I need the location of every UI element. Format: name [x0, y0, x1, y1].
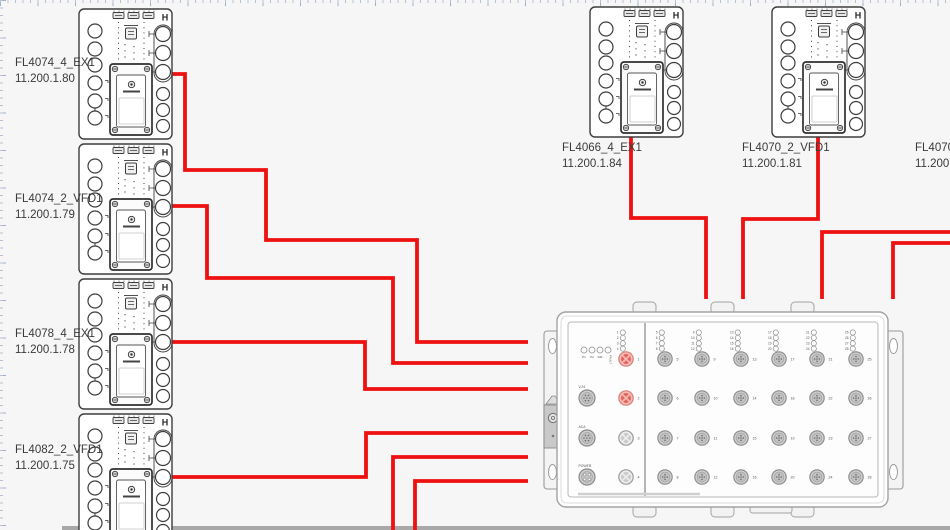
port-led: [620, 346, 625, 351]
device-label-FL4074_4_EX1[interactable]: FL4074_4_EX1 11.200.1.80: [15, 56, 95, 87]
port-led-number: 11: [691, 342, 695, 346]
port-led: [735, 330, 740, 335]
port-led-number: 5: [656, 331, 658, 335]
port-led: [850, 346, 855, 351]
port-led: [735, 341, 740, 346]
port-led-number: 15: [730, 342, 734, 346]
port-led: [811, 330, 816, 335]
port-led: [659, 346, 664, 351]
port-number: 9: [714, 357, 716, 361]
port-number: 23: [829, 436, 833, 440]
device-ip: 11.200.1.80: [15, 72, 95, 88]
port-number: 18: [791, 396, 795, 400]
port-number: 12: [714, 475, 718, 479]
device-shape-FL4070_2_VFD1[interactable]: [772, 7, 865, 137]
port-number: 25: [868, 357, 872, 361]
port-number: 4: [638, 475, 640, 479]
aux-port-label: POWER: [579, 464, 592, 468]
port-number: 8: [677, 475, 679, 479]
status-led-P1: [581, 347, 587, 353]
port-led: [773, 341, 778, 346]
device-ip: 11.200.1.75: [15, 459, 103, 475]
port-number: 10: [714, 396, 718, 400]
port-led: [811, 341, 816, 346]
port-led: [659, 341, 664, 346]
port-led-number: 22: [806, 336, 810, 340]
port-led-number: 9: [693, 331, 695, 335]
port-led: [811, 346, 816, 351]
device-label-FL4082_2_VFD1[interactable]: FL4082_2_VFD1 11.200.1.75: [15, 443, 103, 474]
port-led-number: 28: [845, 347, 849, 351]
port-led-number: 2: [617, 336, 619, 340]
status-led-label: FAULT: [609, 355, 613, 364]
port-led-number: 19: [768, 342, 772, 346]
cable-FL4082_2_VFD1[interactable]: [171, 433, 528, 477]
port-led: [811, 335, 816, 340]
port-number: 16: [753, 475, 757, 479]
cable-offscreen-bottom-b[interactable]: [415, 481, 528, 530]
port-led-number: 27: [845, 342, 849, 346]
port-number: 2: [638, 396, 640, 400]
port-number: 14: [753, 396, 757, 400]
port-led: [696, 330, 701, 335]
status-led-label: P1: [582, 355, 586, 359]
port-led-number: 4: [617, 347, 619, 351]
device-ip: 11.200.1.: [915, 157, 950, 173]
port-number: 27: [868, 436, 872, 440]
cable-FL4074_4_EX1[interactable]: [171, 74, 528, 342]
aux-port-label: V.24: [579, 385, 586, 389]
port-led: [850, 335, 855, 340]
device-ip: 11.200.1.79: [15, 208, 103, 224]
device-ip: 11.200.1.81: [742, 157, 830, 173]
port-number: 21: [829, 357, 833, 361]
status-led-P2: [589, 347, 595, 353]
port-number: 13: [753, 357, 757, 361]
port-number: 11: [714, 436, 718, 440]
status-led-FAULT: [605, 347, 611, 353]
port-led-number: 25: [845, 331, 849, 335]
device-ip: 11.200.1.84: [562, 157, 642, 173]
port-number: 26: [868, 396, 872, 400]
port-number: 1: [638, 357, 640, 361]
port-led: [773, 346, 778, 351]
port-led-number: 21: [806, 331, 810, 335]
port-led: [773, 330, 778, 335]
port-led: [850, 330, 855, 335]
port-led-number: 17: [768, 331, 772, 335]
status-led-label: RM: [598, 355, 603, 359]
device-label-FL4066_4_EX1[interactable]: FL4066_4_EX1 11.200.1.84: [562, 141, 642, 172]
status-led-RM: [597, 347, 603, 353]
status-led-label: P2: [590, 355, 594, 359]
port-led-number: 18: [768, 336, 772, 340]
device-label-FL4078_4_EX1[interactable]: FL4078_4_EX1 11.200.1.78: [15, 327, 95, 358]
port-led: [620, 330, 625, 335]
port-number: 7: [677, 436, 679, 440]
port-number: 20: [791, 475, 795, 479]
device-name: FL4082_2_VFD1: [15, 443, 103, 459]
port-led-number: 26: [845, 336, 849, 340]
device-label-FL4074_2_VFD1[interactable]: FL4074_2_VFD1 11.200.1.79: [15, 192, 103, 223]
port-led: [735, 346, 740, 351]
device-name: FL4078_4_EX1: [15, 327, 95, 343]
device-name: FL4074_2_VFD1: [15, 192, 103, 208]
port-number: 24: [829, 475, 833, 479]
port-number: 22: [829, 396, 833, 400]
port-led: [696, 346, 701, 351]
port-number: 28: [868, 475, 872, 479]
port-led-number: 3: [617, 342, 619, 346]
port-led-number: 14: [730, 336, 734, 340]
device-name: FL4066_4_EX1: [562, 141, 642, 157]
central-switch[interactable]: P1P2RMFAULT 1234567891011121314151617181…: [544, 302, 903, 517]
device-shape-FL4066_4_EX1[interactable]: [590, 7, 683, 137]
port-led-number: 20: [768, 347, 772, 351]
device-name: FL4070_2_VFD1: [742, 141, 830, 157]
device-name: FL4070_4: [915, 141, 950, 157]
port-led-number: 24: [806, 347, 810, 351]
port-led-number: 1: [617, 331, 619, 335]
aux-port-label: ACA: [579, 425, 587, 429]
cable-FL4078_4_EX1[interactable]: [171, 342, 528, 389]
diagram-canvas: H: [0, 0, 950, 530]
port-led: [659, 330, 664, 335]
device-ip: 11.200.1.78: [15, 343, 95, 359]
port-led: [735, 335, 740, 340]
port-number: 15: [753, 436, 757, 440]
switch-faceplate: [568, 322, 878, 497]
device-label-FL4070-clipped[interactable]: FL4070_4 11.200.1.: [915, 141, 950, 172]
port-number: 3: [638, 436, 640, 440]
port-led-number: 16: [730, 347, 734, 351]
device-label-FL4070_2_VFD1[interactable]: FL4070_2_VFD1 11.200.1.81: [742, 141, 830, 172]
port-led: [696, 335, 701, 340]
grounding-screw: [548, 413, 557, 422]
port-number: 5: [677, 357, 679, 361]
port-led-number: 8: [656, 347, 658, 351]
port-led: [620, 335, 625, 340]
device-name: FL4074_4_EX1: [15, 56, 95, 72]
port-led: [696, 341, 701, 346]
port-led-number: 7: [656, 342, 658, 346]
port-led-number: 12: [691, 347, 695, 351]
port-led: [620, 341, 625, 346]
port-led-number: 23: [806, 342, 810, 346]
port-led: [850, 341, 855, 346]
port-number: 17: [791, 357, 795, 361]
cable-offscreen-right-b[interactable]: [893, 243, 950, 299]
port-number: 6: [677, 396, 679, 400]
port-led-number: 10: [691, 336, 695, 340]
port-led: [773, 335, 778, 340]
port-led-number: 13: [730, 331, 734, 335]
cable-FL4074_2_VFD1[interactable]: [171, 206, 528, 363]
cable-FL4066_4_EX1[interactable]: [631, 133, 706, 299]
port-number: 19: [791, 436, 795, 440]
port-led-number: 6: [656, 336, 658, 340]
port-led: [659, 335, 664, 340]
